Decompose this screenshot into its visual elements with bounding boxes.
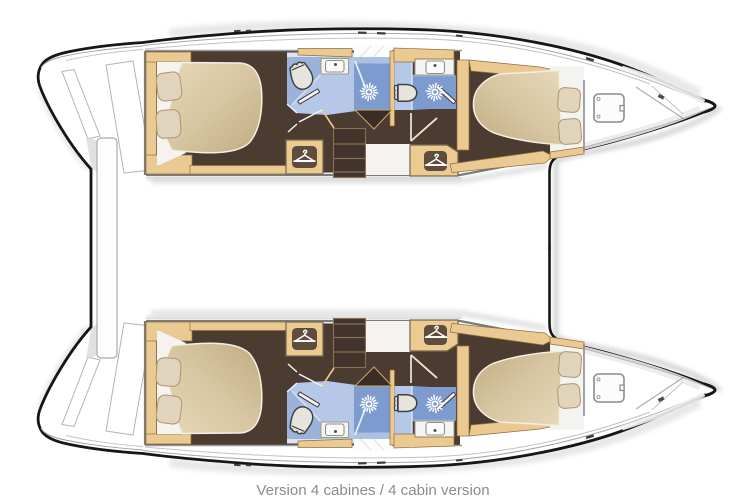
svg-text:Version 4 cabines / 4 cabin ve: Version 4 cabines / 4 cabin version <box>256 482 489 496</box>
